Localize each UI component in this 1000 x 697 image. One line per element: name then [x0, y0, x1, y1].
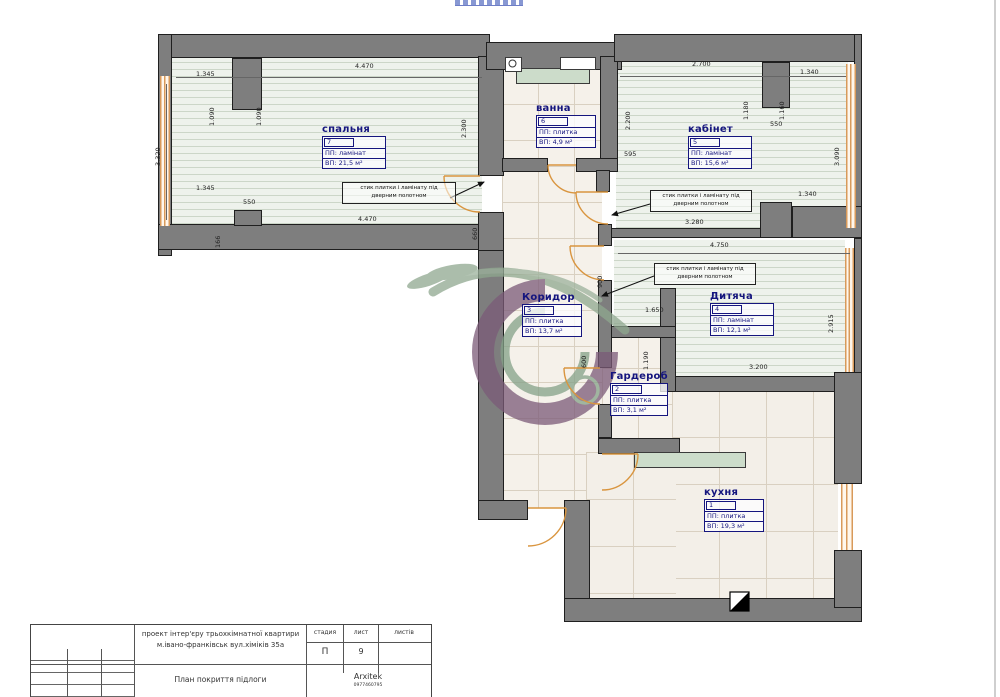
room-covering: ПП: ламінат	[711, 315, 773, 325]
room-area: ВП: 15,6 м²	[689, 158, 751, 168]
note-text: стик плитки і ламінату під	[360, 185, 437, 191]
dimension-label: 1.340	[798, 190, 817, 198]
room-area: ВП: 4,9 м²	[537, 137, 595, 147]
dimension-label: 595	[624, 150, 636, 158]
note-joint-3: стик плитки і ламінату під дверним полот…	[654, 263, 756, 285]
stage-value: П	[307, 647, 343, 657]
room-title: кабінет	[688, 124, 752, 135]
wall-pier	[232, 58, 262, 110]
floor-kukhnia-left	[586, 452, 676, 602]
firm-name: Arxitek	[307, 672, 429, 681]
room-label-koridor: Коридор 3 ПП: плитка ВП: 13,7 м²	[522, 292, 582, 337]
room-label-harderob: Гардероб 2 ПП: плитка ВП: 3,1 м²	[610, 371, 668, 416]
viewer-edge-line	[994, 0, 996, 697]
dimension-label: 600	[580, 356, 588, 368]
title-block-line	[306, 642, 431, 643]
wall-segment	[478, 212, 504, 252]
drawing-sheet: спальня 7 ПП: ламінат ВП: 21,5 м² ванна …	[0, 0, 1000, 697]
dimension-label: 1.160	[778, 101, 786, 120]
wall-pier	[760, 202, 792, 238]
room-label-kabinet: кабінет 5 ПП: ламінат ВП: 15,6 м²	[688, 124, 752, 169]
title-block: проект інтер'єру трьохкімнатної квартири…	[30, 624, 432, 697]
wall-segment	[854, 238, 862, 382]
dimension-label: 1.090	[255, 107, 263, 126]
clipped-browser-link[interactable]	[455, 0, 523, 6]
room-covering: ПП: плитка	[537, 127, 595, 137]
stage-header: стадия	[307, 629, 343, 636]
room-covering: ПП: плитка	[611, 395, 667, 405]
wall-segment	[478, 250, 504, 502]
dimension-label: 3.090	[833, 147, 841, 166]
room-area: ВП: 3,1 м²	[611, 405, 667, 415]
room-label-vanna: ванна 6 ПП: плитка ВП: 4,9 м²	[536, 103, 596, 148]
room-covering: ПП: плитка	[705, 511, 763, 521]
wall-segment	[478, 500, 528, 520]
dimension-label: 2.300	[460, 119, 468, 138]
wall-segment	[158, 34, 490, 58]
kitchen-counter	[634, 452, 746, 468]
wall-segment	[598, 280, 612, 368]
dimension-line	[166, 84, 167, 220]
room-label-dytiacha: Дитяча 4 ПП: ламінат ВП: 12,1 м²	[710, 291, 774, 336]
note-text: стик плитки і ламінату під	[666, 266, 743, 272]
wall-segment	[564, 598, 862, 622]
door-entrance	[528, 508, 566, 546]
washer-icon	[505, 57, 522, 72]
note-text: стик плитки і ламінату під	[662, 193, 739, 199]
dimension-label: 2.915	[827, 314, 835, 333]
room-number: 2	[612, 385, 642, 394]
firm-phone: 0977460795	[307, 683, 429, 688]
dimension-label: 3.280	[685, 218, 704, 226]
room-label-spalnya: спальня 7 ПП: ламінат ВП: 21,5 м²	[322, 124, 386, 169]
title-block-line	[101, 649, 102, 697]
vanna-counter	[516, 68, 590, 84]
room-covering: ПП: ламінат	[689, 148, 751, 158]
room-area: ВП: 12,1 м²	[711, 325, 773, 335]
dimension-label: 1.340	[800, 68, 819, 76]
dimension-label: 550	[243, 198, 255, 206]
dimension-label: 660	[471, 228, 479, 240]
room-number: 1	[706, 501, 736, 510]
dimension-label: 3.200	[749, 363, 768, 371]
window-kukhnia	[841, 484, 853, 550]
wall-segment	[478, 56, 504, 176]
vanna-niche	[560, 57, 596, 70]
room-covering: ПП: ламінат	[323, 148, 385, 158]
room-area: ВП: 21,5 м²	[323, 158, 385, 168]
dimension-line	[620, 76, 846, 77]
room-number: 3	[524, 306, 554, 315]
window-kabinet	[846, 64, 856, 228]
dimension-label: 166	[214, 236, 222, 248]
note-joint-2: стик плитки і ламінату під дверним полот…	[650, 190, 752, 212]
project-name: проект інтер'єру трьохкімнатної квартири…	[135, 629, 306, 650]
revision-rows	[31, 649, 134, 697]
dimension-label: 900	[596, 276, 604, 288]
note-text: дверним полотном	[677, 274, 732, 280]
dimension-label: 4.470	[355, 62, 374, 70]
room-title: ванна	[536, 103, 596, 114]
dimension-label: 1.345	[196, 184, 215, 192]
room-title: Гардероб	[610, 371, 668, 382]
room-number: 7	[324, 138, 354, 147]
room-title: Коридор	[522, 292, 582, 303]
wall-segment	[834, 372, 862, 484]
dimension-label: 1.090	[208, 107, 216, 126]
wall-segment	[614, 34, 862, 62]
room-area: ВП: 13,7 м²	[523, 326, 581, 336]
wall-segment	[668, 376, 840, 392]
project-line1: проект інтер'єру трьохкімнатної квартири	[135, 629, 306, 640]
dimension-line	[176, 77, 482, 78]
room-covering: ПП: плитка	[523, 316, 581, 326]
dimension-label: 4.470	[358, 215, 377, 223]
room-title: спальня	[322, 124, 386, 135]
room-title: кухня	[704, 487, 764, 498]
doc-title: План покриття підлоги	[135, 675, 306, 684]
note-text: дверним полотном	[673, 201, 728, 207]
room-number: 4	[712, 305, 742, 314]
room-number: 5	[690, 138, 720, 147]
dimension-label: 1.180	[742, 101, 750, 120]
wall-segment	[158, 224, 504, 250]
dimension-label: 1.190	[642, 351, 650, 370]
dimension-label: 4.750	[710, 241, 729, 249]
dimension-label: 2.700	[692, 60, 711, 68]
dimension-label: 550	[770, 120, 782, 128]
room-title: Дитяча	[710, 291, 774, 302]
dimension-label: 1.650	[645, 306, 664, 314]
wall-stub	[596, 170, 610, 192]
sheets-header: листів	[379, 629, 429, 636]
dimension-label: 2.200	[624, 111, 632, 130]
wall-segment	[834, 550, 862, 608]
project-line2: м.івано-франківськ вул.хіміків 35а	[135, 640, 306, 651]
window-dytiacha	[845, 248, 854, 372]
sheet-value: 9	[344, 647, 378, 656]
dimension-label: 3.320	[154, 147, 162, 166]
dimension-label: 1.345	[196, 70, 215, 78]
title-block-line	[67, 649, 68, 697]
wall-segment	[502, 158, 548, 172]
wall-segment	[600, 56, 618, 172]
room-label-kukhnia: кухня 1 ПП: плитка ВП: 19,3 м²	[704, 487, 764, 532]
sheet-header: лист	[344, 629, 378, 636]
dimension-line	[618, 253, 850, 254]
wall-notch	[234, 210, 262, 226]
wall-segment	[598, 224, 612, 246]
note-text: дверним полотном	[371, 193, 426, 199]
room-area: ВП: 19,3 м²	[705, 521, 763, 531]
note-joint-1: стик плитки і ламінату під дверним полот…	[342, 182, 456, 204]
room-number: 6	[538, 117, 568, 126]
